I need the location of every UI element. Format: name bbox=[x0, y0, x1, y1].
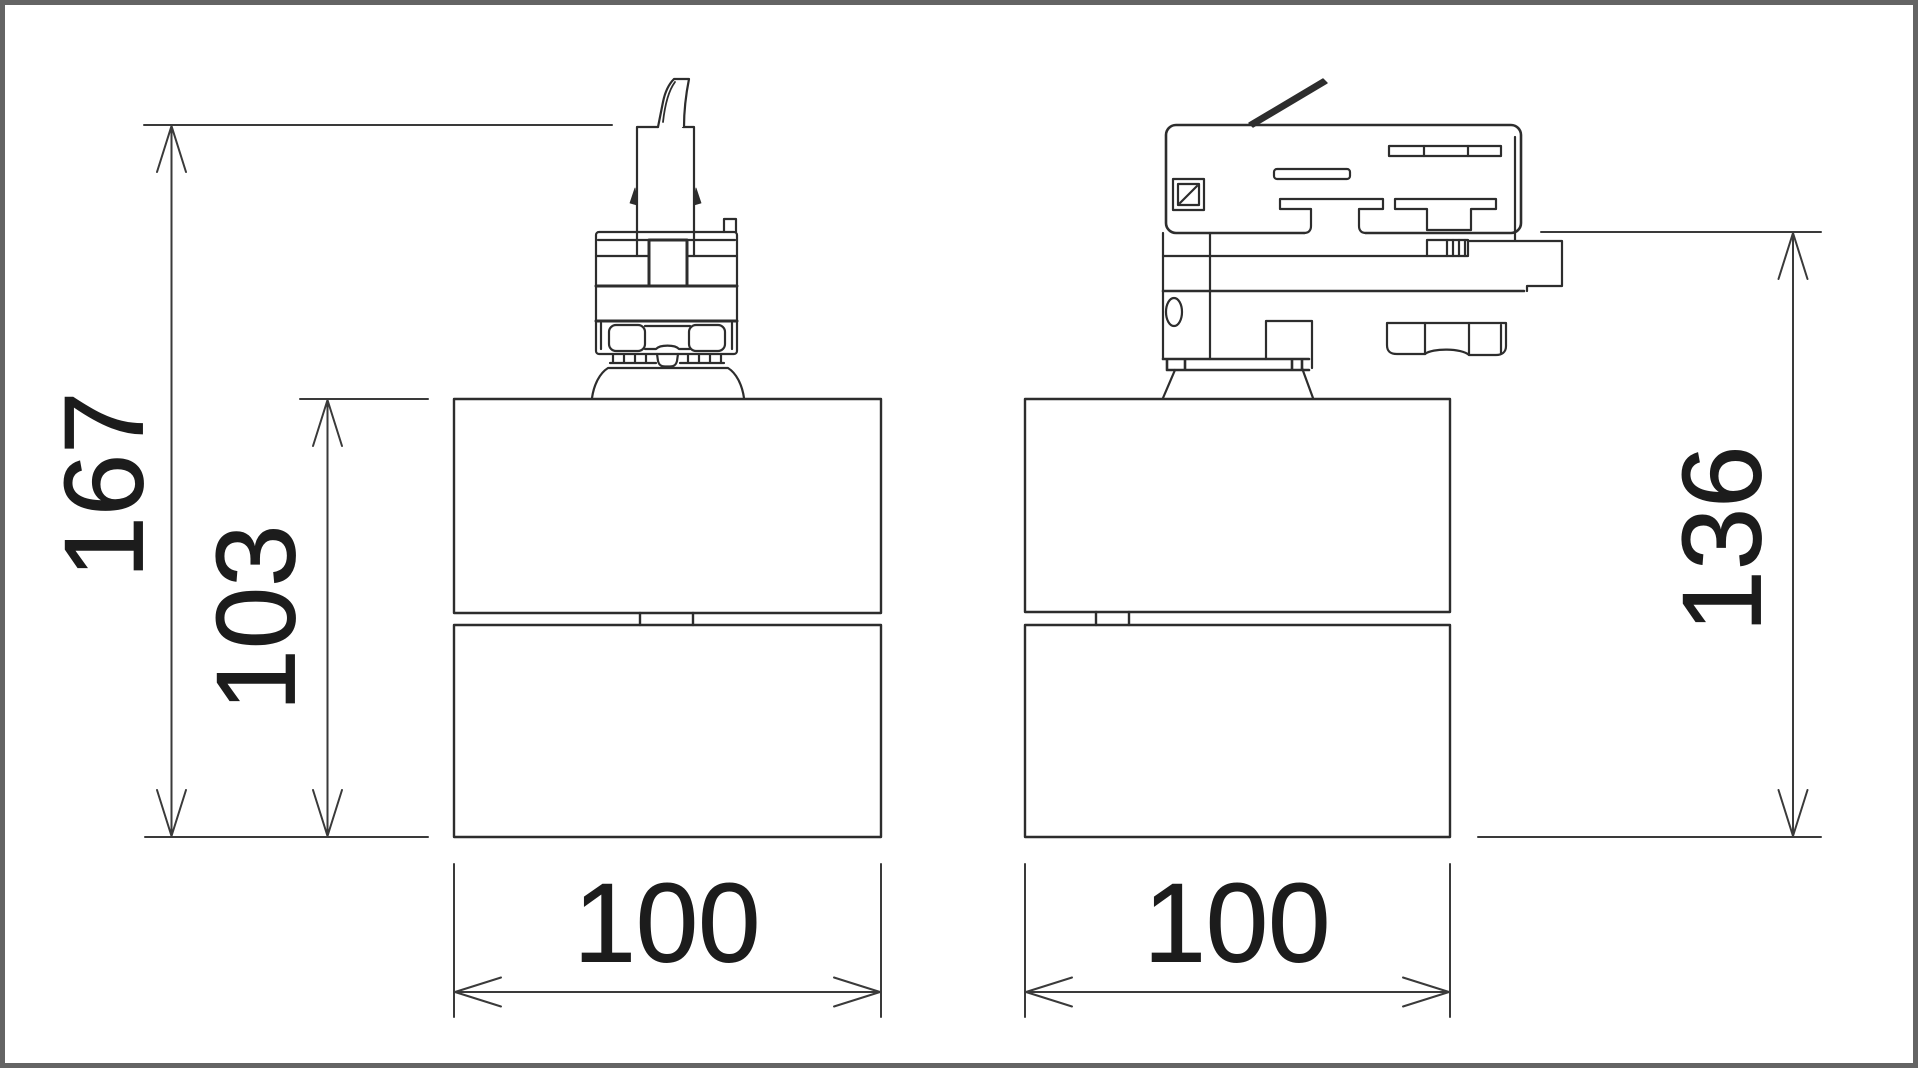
svg-text:100: 100 bbox=[574, 861, 761, 986]
svg-text:100: 100 bbox=[1144, 861, 1331, 986]
svg-text:136: 136 bbox=[1660, 446, 1785, 633]
svg-text:103: 103 bbox=[194, 525, 319, 712]
svg-text:167: 167 bbox=[42, 392, 167, 579]
